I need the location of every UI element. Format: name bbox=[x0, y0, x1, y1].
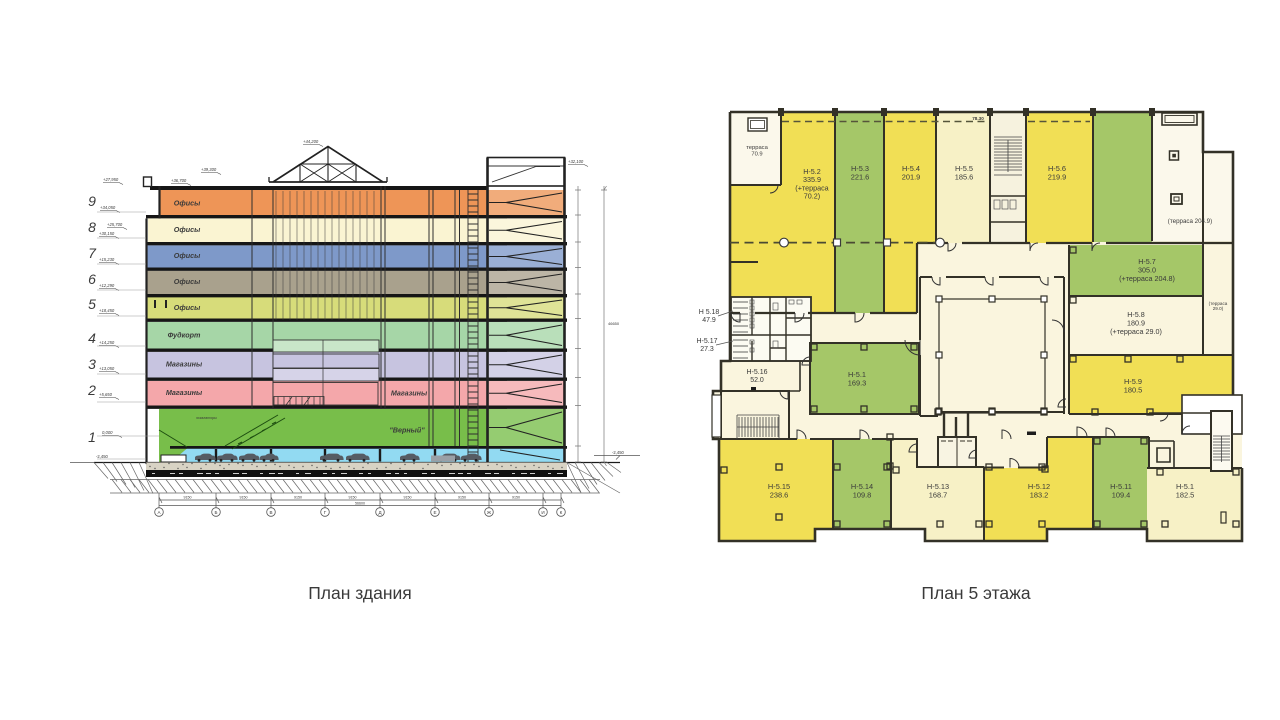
svg-text:эскалаторы: эскалаторы bbox=[196, 416, 217, 420]
svg-text:5: 5 bbox=[88, 296, 96, 312]
svg-text:+25,700: +25,700 bbox=[107, 222, 123, 227]
svg-text:+34,050: +34,050 bbox=[100, 205, 116, 210]
svg-text:1: 1 bbox=[88, 429, 96, 445]
svg-text:Магазины: Магазины bbox=[391, 389, 428, 398]
svg-text:Б: Б bbox=[214, 510, 217, 515]
svg-text:9: 9 bbox=[88, 193, 96, 209]
svg-text:(терраса 204.9): (терраса 204.9) bbox=[1168, 218, 1212, 225]
svg-text:+44,200: +44,200 bbox=[303, 139, 319, 144]
svg-text:К: К bbox=[560, 510, 563, 515]
svg-text:+15,230: +15,230 bbox=[99, 257, 115, 262]
svg-text:+27,950: +27,950 bbox=[103, 177, 119, 182]
svg-text:9150: 9150 bbox=[240, 496, 248, 500]
svg-text:+14,250: +14,250 bbox=[99, 340, 115, 345]
svg-text:Н-5.9180.5: Н-5.9180.5 bbox=[1124, 377, 1143, 395]
svg-text:9150: 9150 bbox=[349, 496, 357, 500]
svg-text:+39,300: +39,300 bbox=[201, 167, 217, 172]
svg-text:78.30: 78.30 bbox=[972, 116, 984, 121]
svg-text:Н-5.6219.9: Н-5.6219.9 bbox=[1048, 164, 1067, 182]
svg-text:И: И bbox=[541, 510, 544, 515]
svg-text:+12,290: +12,290 bbox=[99, 283, 115, 288]
svg-text:Н-5.14109.8: Н-5.14109.8 bbox=[851, 482, 873, 500]
svg-text:Магазины: Магазины bbox=[166, 360, 203, 369]
svg-text:+36,700: +36,700 bbox=[171, 178, 187, 183]
svg-text:Офисы: Офисы bbox=[174, 225, 201, 234]
svg-text:4: 4 bbox=[88, 330, 96, 346]
svg-text:Офисы: Офисы bbox=[174, 199, 201, 208]
svg-text:План 5 этажа: План 5 этажа bbox=[921, 583, 1030, 603]
svg-text:Н-5.1182.5: Н-5.1182.5 bbox=[1176, 482, 1195, 500]
svg-text:В: В bbox=[269, 510, 272, 515]
svg-text:+13,050: +13,050 bbox=[99, 366, 115, 371]
svg-text:9150: 9150 bbox=[294, 496, 302, 500]
svg-text:-2,450: -2,450 bbox=[612, 450, 625, 455]
svg-text:План здания: План здания bbox=[308, 583, 412, 603]
svg-text:2: 2 bbox=[87, 382, 96, 398]
svg-text:Н-5.3221.6: Н-5.3221.6 bbox=[851, 164, 870, 182]
svg-text:7: 7 bbox=[88, 245, 97, 261]
svg-text:9150: 9150 bbox=[512, 496, 520, 500]
svg-text:Офисы: Офисы bbox=[174, 277, 201, 286]
svg-text:+32,100: +32,100 bbox=[568, 159, 584, 164]
svg-text:Е: Е bbox=[433, 510, 436, 515]
svg-text:8: 8 bbox=[88, 219, 96, 235]
svg-text:+30,150: +30,150 bbox=[99, 231, 115, 236]
svg-text:+5,650: +5,650 bbox=[99, 392, 113, 397]
svg-text:Офисы: Офисы bbox=[174, 303, 201, 312]
svg-text:9150: 9150 bbox=[458, 496, 466, 500]
svg-text:"Верный": "Верный" bbox=[389, 426, 425, 435]
svg-text:46650: 46650 bbox=[608, 321, 620, 326]
svg-text:Н-5.5185.6: Н-5.5185.6 bbox=[955, 164, 974, 182]
svg-text:0,000: 0,000 bbox=[102, 430, 113, 435]
svg-text:Н-5.4201.9: Н-5.4201.9 bbox=[902, 164, 921, 182]
svg-text:Н-5.1169.3: Н-5.1169.3 bbox=[848, 370, 867, 388]
svg-text:56600: 56600 bbox=[355, 501, 365, 505]
svg-text:6: 6 bbox=[88, 271, 96, 287]
svg-text:Н-5.12183.2: Н-5.12183.2 bbox=[1028, 482, 1050, 500]
svg-text:Офисы: Офисы bbox=[174, 251, 201, 260]
svg-text:9150: 9150 bbox=[404, 496, 412, 500]
svg-text:3: 3 bbox=[88, 356, 96, 372]
svg-text:-2,450: -2,450 bbox=[96, 454, 109, 459]
svg-text:Н-5.13168.7: Н-5.13168.7 bbox=[927, 482, 949, 500]
svg-text:Н-5.11109.4: Н-5.11109.4 bbox=[1110, 482, 1132, 500]
svg-text:Н-5.15238.6: Н-5.15238.6 bbox=[768, 482, 790, 500]
svg-text:Магазины: Магазины bbox=[166, 388, 203, 397]
svg-text:Фудкорт: Фудкорт bbox=[168, 331, 201, 340]
svg-text:9150: 9150 bbox=[184, 496, 192, 500]
svg-text:+18,450: +18,450 bbox=[99, 308, 115, 313]
